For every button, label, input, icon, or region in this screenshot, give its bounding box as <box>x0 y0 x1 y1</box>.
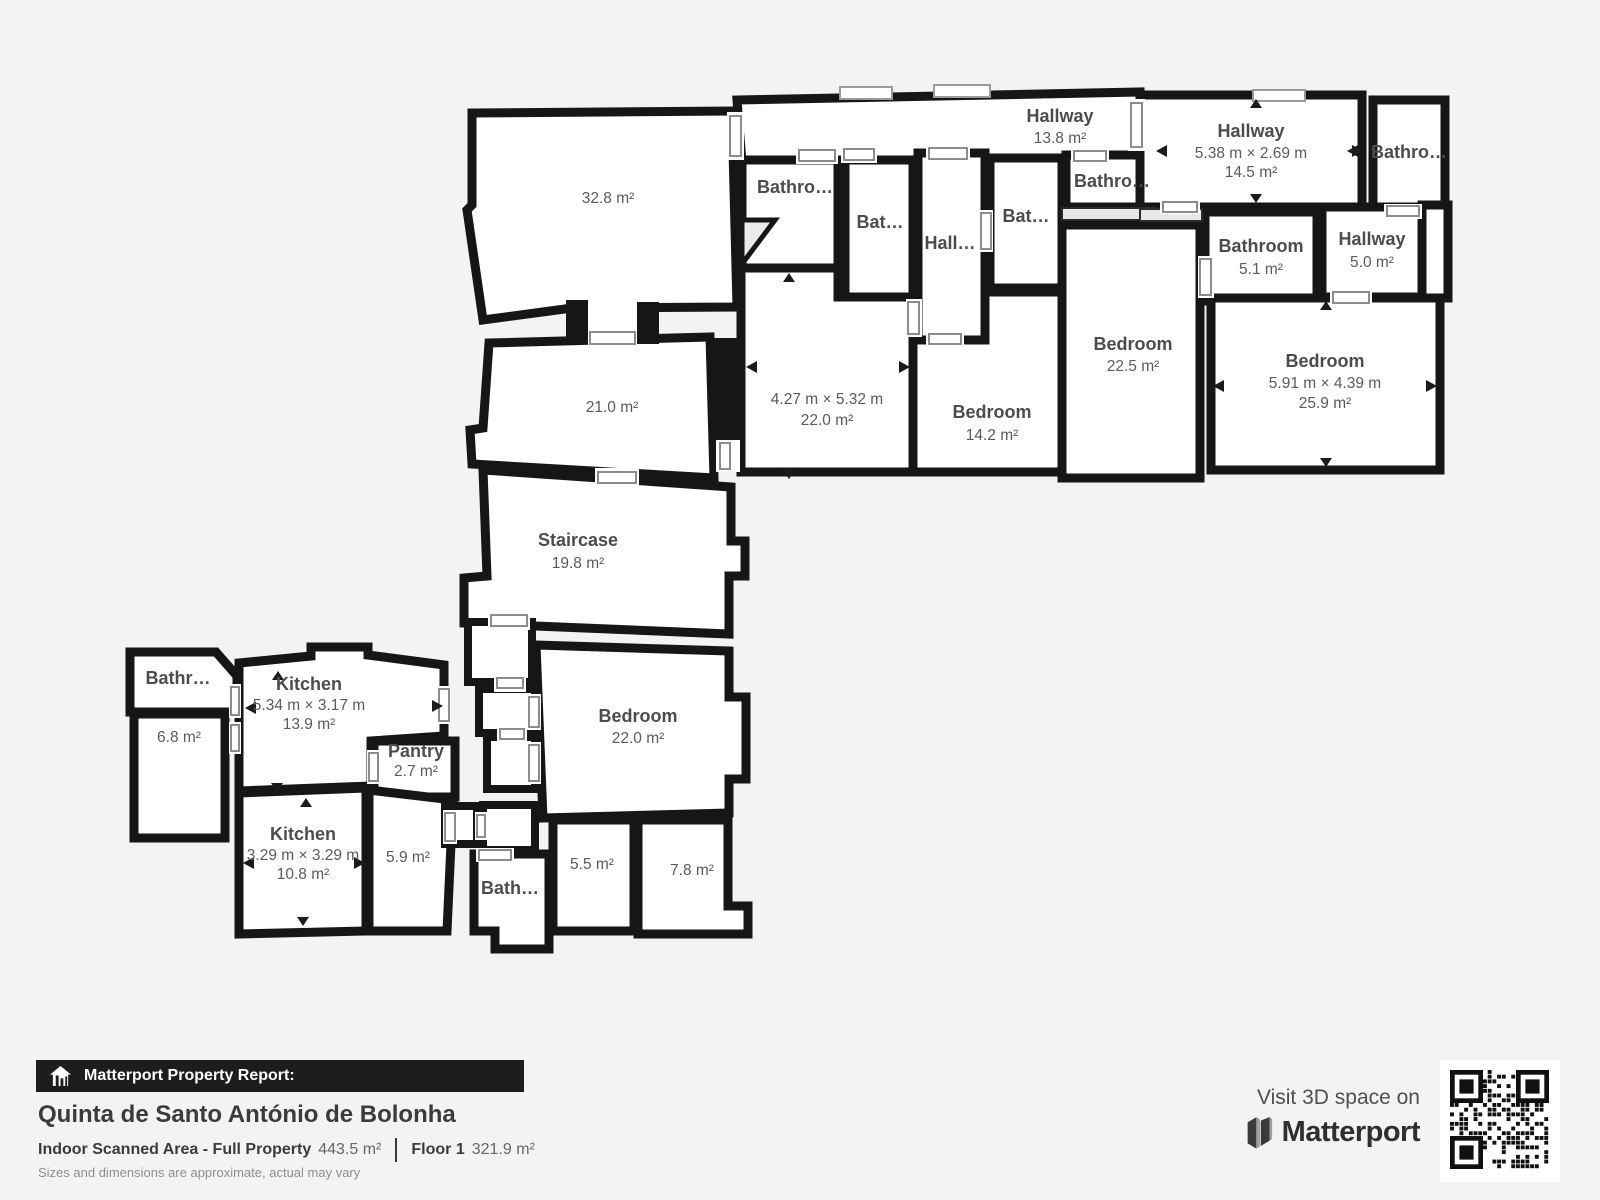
disclaimer-text: Sizes and dimensions are approximate, ac… <box>38 1165 360 1180</box>
room-area: 5.0 m² <box>1350 254 1394 271</box>
room-area: 5.5 m² <box>570 856 614 873</box>
label-bathroom-strip-left: Bathro… <box>757 177 833 197</box>
room-dims: 3.29 m × 3.29 m <box>247 847 359 864</box>
label-room-7-8: 7.8 m² <box>670 862 714 879</box>
room-name: Bathro… <box>757 177 833 197</box>
floorplan-canvas: 32.8 m² 21.0 m² Staircase 19.8 m² Hallwa… <box>0 0 1600 1010</box>
bath-lower-shape <box>474 854 549 949</box>
room-area: 19.8 m² <box>552 555 605 572</box>
staircase-shape <box>464 470 745 634</box>
room-area: 5.1 m² <box>1239 261 1283 278</box>
room-area: 22.5 m² <box>1107 358 1160 375</box>
room-name: Bathr… <box>145 668 210 688</box>
label-room-5-5: 5.5 m² <box>570 856 614 873</box>
bathroom-5-1-shape <box>1205 212 1317 301</box>
floorplan-rooms <box>130 92 1448 949</box>
room-32-8-shape <box>467 111 737 320</box>
floor-label: Floor 1 <box>411 1141 464 1159</box>
label-bathroom-lower-left: Bathr… <box>145 668 210 688</box>
room-area: 5.9 m² <box>386 849 430 866</box>
room-area: 6.8 m² <box>157 729 201 746</box>
label-hall-corridor: Hall… <box>924 233 975 253</box>
label-room-32-8: 32.8 m² <box>582 190 635 207</box>
room-area: 7.8 m² <box>670 862 714 879</box>
matterport-wordmark: Matterport <box>1282 1116 1420 1149</box>
room-name: Kitchen <box>270 824 336 844</box>
room-area: 25.9 m² <box>1299 395 1352 412</box>
stats-divider <box>395 1138 397 1162</box>
area-stats: Indoor Scanned Area - Full Property 443.… <box>38 1138 535 1162</box>
qr-code <box>1440 1060 1560 1182</box>
room-dims: 5.38 m × 2.69 m <box>1195 145 1307 162</box>
label-room-5-9: 5.9 m² <box>386 849 430 866</box>
room-name: Bathro… <box>1371 142 1447 162</box>
label-bathroom-strip-right: Bathro… <box>1074 171 1150 191</box>
room-dims: 5.91 m × 4.39 m <box>1269 375 1381 392</box>
room-22-0-shape <box>741 268 913 472</box>
room-area: 14.5 m² <box>1225 164 1278 181</box>
report-bar-label: Matterport Property Report: <box>84 1067 295 1085</box>
matterport-logo-icon <box>1245 1114 1273 1150</box>
room-area: 13.8 m² <box>1034 130 1087 147</box>
house-report-icon <box>49 1066 72 1086</box>
room-name: Bathro… <box>1074 171 1150 191</box>
room-name: Bedroom <box>952 402 1031 422</box>
label-room-6-8: 6.8 m² <box>157 729 201 746</box>
room-name: Staircase <box>538 530 618 550</box>
room-name: Pantry <box>388 741 444 761</box>
vestibule-e-shape <box>483 805 535 850</box>
room-name: Bathroom <box>1219 236 1304 256</box>
room-name: Hallway <box>1026 106 1093 126</box>
room-area: 32.8 m² <box>582 190 635 207</box>
room-5-5-shape <box>553 820 634 931</box>
room-name: Bat… <box>1002 206 1049 226</box>
room-name: Bat… <box>856 212 903 232</box>
label-bathroom-top-right: Bathro… <box>1371 142 1447 162</box>
hallway-5-0-shape <box>1322 207 1422 297</box>
visit-3d-cta: Visit 3D space on Matterport <box>1245 1086 1420 1150</box>
room-name: Bedroom <box>1285 351 1364 371</box>
floor-value: 321.9 m² <box>472 1141 535 1159</box>
report-bar: Matterport Property Report: <box>36 1060 524 1092</box>
property-name: Quinta de Santo António de Bolonha <box>38 1101 456 1129</box>
area-label: Indoor Scanned Area - Full Property <box>38 1141 311 1159</box>
room-area: 22.0 m² <box>801 412 854 429</box>
room-name: Hallway <box>1338 229 1405 249</box>
visit-text: Visit 3D space on <box>1245 1086 1420 1110</box>
label-bath-strip-1: Bat… <box>856 212 903 232</box>
vestibule-a-shape <box>468 622 532 682</box>
room-name: Bath… <box>481 878 539 898</box>
room-area: 2.7 m² <box>394 763 438 780</box>
room-dims: 4.27 m × 5.32 m <box>771 391 883 408</box>
room-area: 14.2 m² <box>966 427 1019 444</box>
room-area: 13.9 m² <box>283 716 336 733</box>
label-bath-strip-2: Bat… <box>1002 206 1049 226</box>
room-name: Bedroom <box>598 706 677 726</box>
label-bath-lower: Bath… <box>481 878 539 898</box>
room-area: 10.8 m² <box>277 866 330 883</box>
matterport-brand: Matterport <box>1245 1114 1420 1150</box>
room-dims: 5.34 m × 3.17 m <box>253 697 365 714</box>
matterport-floorplan-report: 32.8 m² 21.0 m² Staircase 19.8 m² Hallwa… <box>0 0 1600 1200</box>
label-room-21-0: 21.0 m² <box>586 399 639 416</box>
room-name: Kitchen <box>276 674 342 694</box>
room-area: 21.0 m² <box>586 399 639 416</box>
room-name: Hall… <box>924 233 975 253</box>
label-pantry: Pantry 2.7 m² <box>388 741 444 780</box>
room-name: Bedroom <box>1093 334 1172 354</box>
area-value: 443.5 m² <box>318 1141 381 1159</box>
room-area: 22.0 m² <box>612 730 665 747</box>
room-name: Hallway <box>1217 121 1284 141</box>
vestibule-b-shape <box>479 689 535 733</box>
